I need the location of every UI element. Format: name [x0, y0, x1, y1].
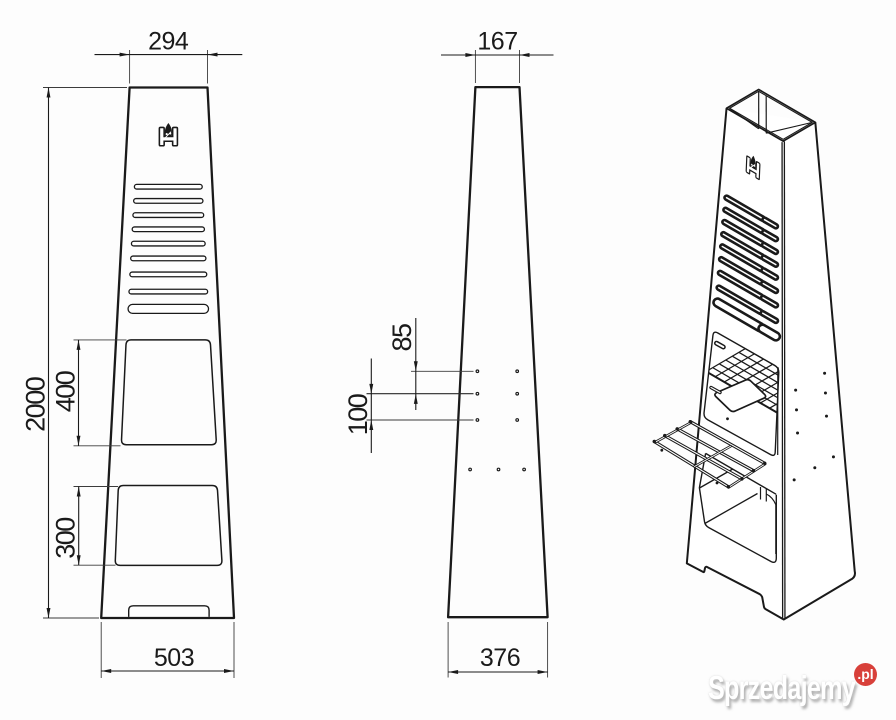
svg-text:376: 376: [480, 644, 520, 672]
svg-text:294: 294: [148, 27, 189, 55]
svg-text:100: 100: [343, 394, 373, 435]
svg-text:167: 167: [477, 28, 517, 56]
svg-text:2000: 2000: [21, 377, 51, 432]
svg-text:400: 400: [50, 371, 80, 412]
svg-text:300: 300: [51, 518, 81, 559]
svg-text:85: 85: [387, 324, 417, 352]
svg-text:503: 503: [154, 644, 194, 672]
